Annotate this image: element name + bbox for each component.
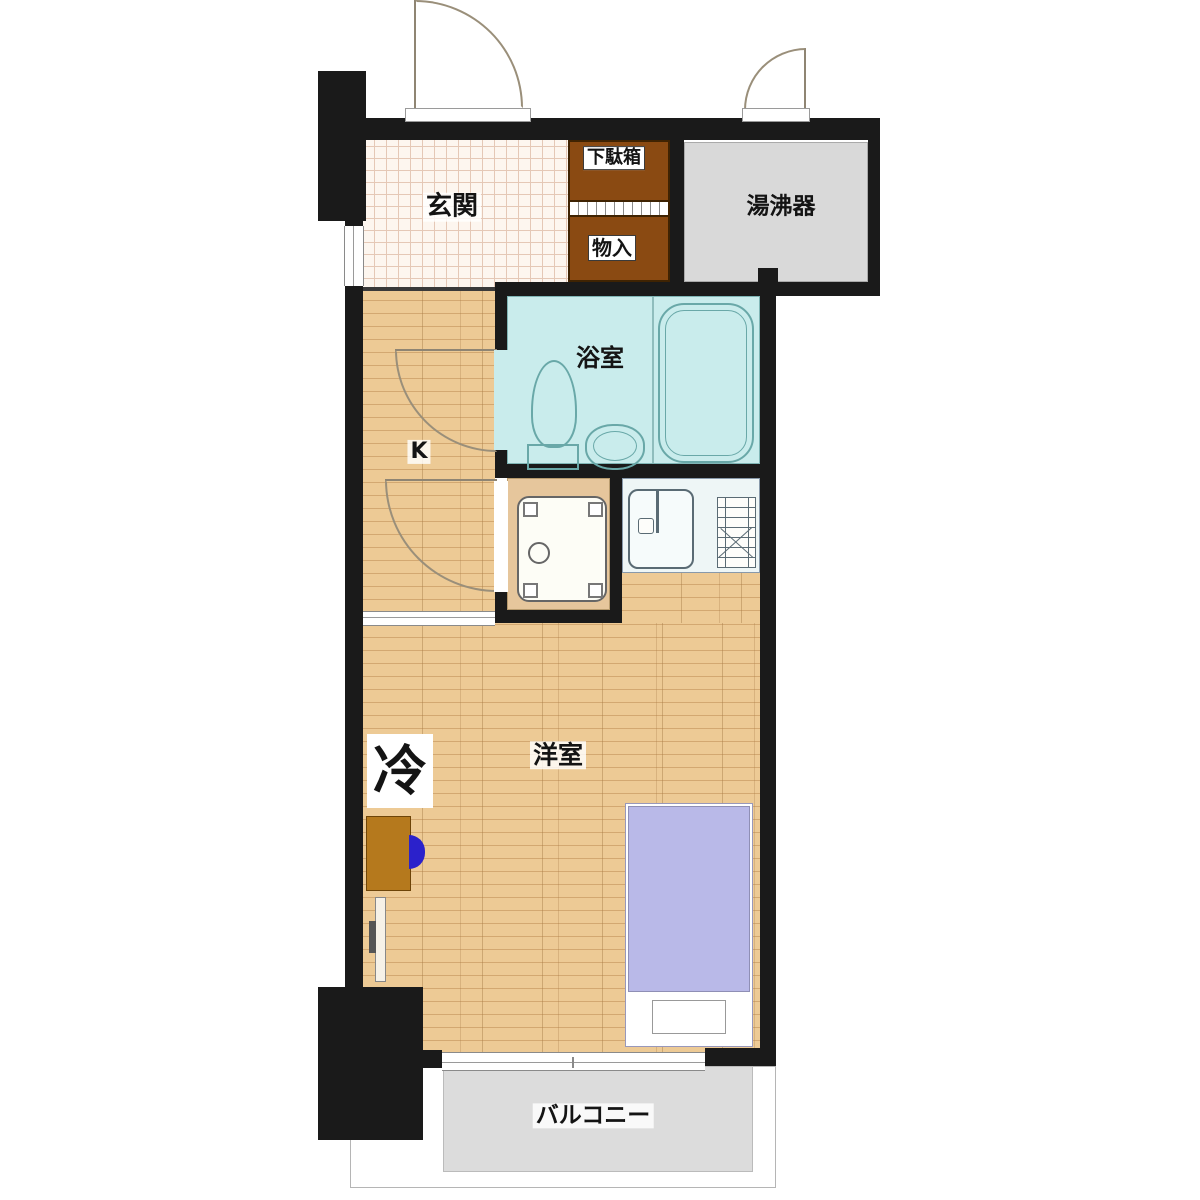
bathroom-door-opening bbox=[494, 350, 508, 450]
pillar-bottom-left bbox=[318, 987, 423, 1140]
wall-cabinet-divider bbox=[670, 118, 684, 296]
stove-cross-line-1 bbox=[720, 528, 753, 558]
wall-bottom-stub-left bbox=[423, 1050, 442, 1068]
wall-east bbox=[760, 282, 776, 1066]
bath-sink-inner bbox=[593, 431, 637, 461]
room-sliding-door bbox=[363, 611, 495, 626]
wall-bath-left-upper bbox=[495, 296, 507, 350]
wall-heater-east bbox=[868, 118, 880, 296]
kitchen-floor-strip bbox=[622, 573, 760, 623]
bath-partition-line bbox=[652, 297, 654, 463]
wall-bath-left-lower bbox=[495, 450, 507, 464]
washer-foot-br bbox=[588, 583, 603, 598]
wall-bottom-corner-right bbox=[705, 1048, 776, 1066]
kitchen-label: K bbox=[407, 440, 430, 464]
floor-plan: 玄関 下駄箱 物入 湯沸器 浴室 K 洋室 冷 バルコニー bbox=[0, 0, 1200, 1200]
stove-icon bbox=[717, 497, 756, 568]
faucet-icon bbox=[656, 491, 659, 533]
entrance-door-sill bbox=[405, 108, 531, 122]
entrance-door-arc bbox=[415, 0, 523, 108]
washer-foot-tr bbox=[588, 502, 603, 517]
pillar-top-left bbox=[318, 71, 366, 221]
wall-heater-stub bbox=[758, 268, 778, 282]
washer-foot-tl bbox=[523, 502, 538, 517]
storage-label: 物入 bbox=[588, 235, 636, 261]
heater-door-arc bbox=[744, 48, 806, 110]
bed-pillow bbox=[652, 1000, 726, 1034]
faucet-base-icon bbox=[638, 518, 654, 534]
cabinet-shelf-band bbox=[568, 202, 670, 215]
refrigerator-label: 冷 bbox=[373, 741, 427, 800]
balcony-window bbox=[442, 1052, 705, 1071]
laundry-door-opening bbox=[494, 481, 508, 592]
bed-mattress bbox=[628, 806, 750, 992]
desk bbox=[366, 816, 411, 891]
bathtub-inner bbox=[665, 310, 747, 456]
toilet-tank-icon bbox=[527, 444, 579, 470]
entry-hall-label: 玄関 bbox=[423, 193, 481, 222]
living-room-label: 洋室 bbox=[530, 741, 586, 769]
washer-foot-bl bbox=[523, 583, 538, 598]
shoe-cabinet-label: 下駄箱 bbox=[583, 146, 645, 170]
washer-hose-icon bbox=[528, 542, 550, 564]
water-heater-label: 湯沸器 bbox=[747, 194, 816, 219]
wall-laundry-right bbox=[610, 478, 622, 623]
wall-mid-horizontal bbox=[495, 282, 880, 296]
bed bbox=[625, 803, 753, 1047]
balcony-label: バルコニー bbox=[533, 1103, 654, 1128]
washing-machine-icon bbox=[517, 496, 607, 602]
heater-door-sill bbox=[742, 108, 810, 122]
tv-board bbox=[375, 897, 386, 982]
bathroom-label: 浴室 bbox=[576, 345, 624, 371]
tv-icon bbox=[369, 921, 376, 953]
balcony-window-tick bbox=[572, 1057, 574, 1068]
west-window bbox=[344, 226, 364, 286]
wall-laundry-bottom bbox=[495, 610, 622, 623]
